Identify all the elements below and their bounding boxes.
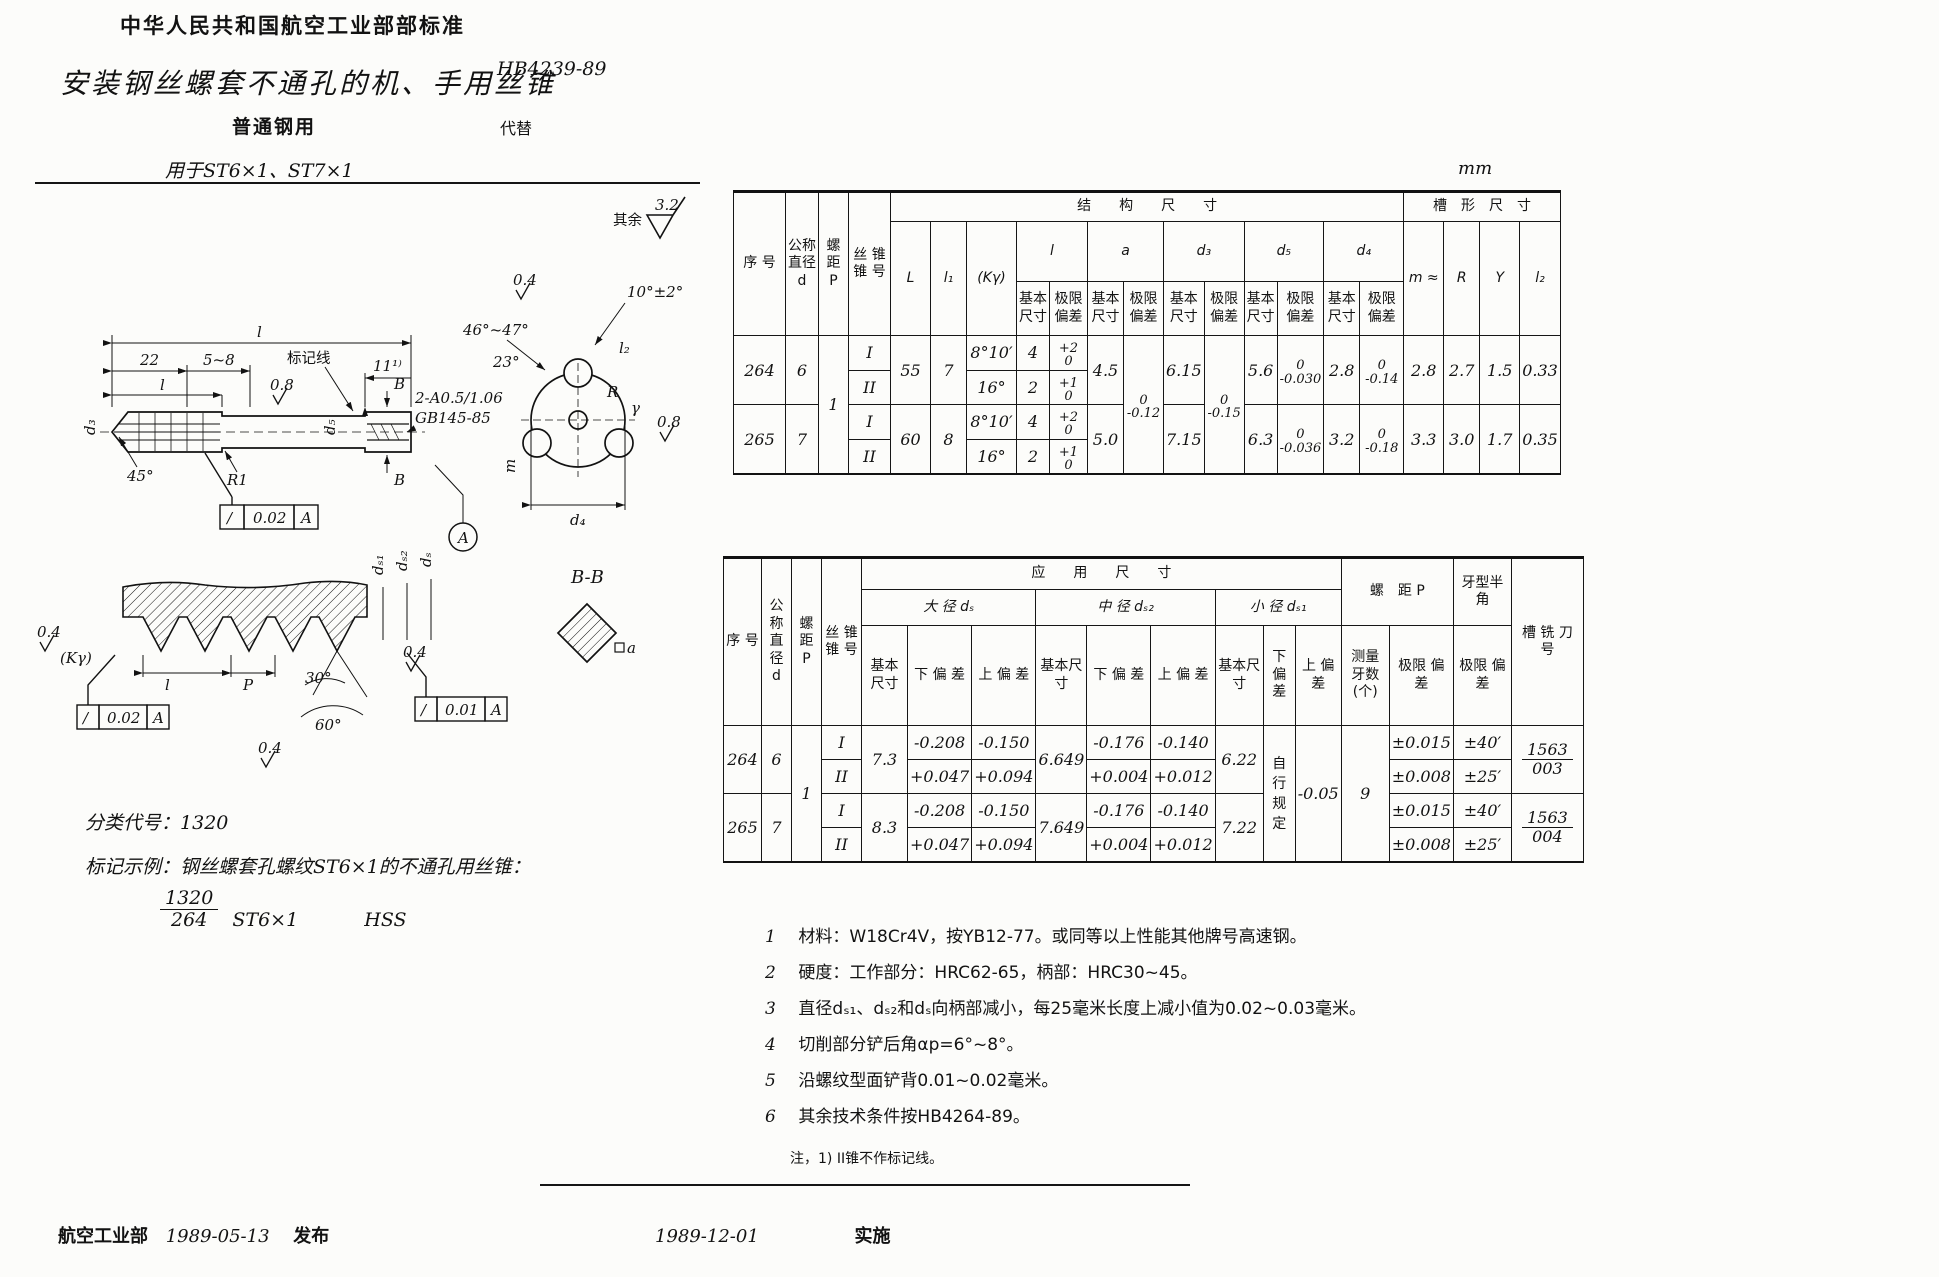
rough-04-bottom: 0.4 — [258, 739, 282, 757]
standard-number: HB4239-89 — [497, 58, 606, 80]
t1-h-a: a — [1088, 222, 1164, 282]
label-l2-endview: l₂ — [619, 339, 630, 357]
t2-h-pitch: 螺 距 P — [792, 558, 822, 726]
t2-264-cutter: 1563003 — [1511, 726, 1583, 794]
label-gamma: γ — [631, 399, 640, 417]
t2-minor-upper: -0.05 — [1295, 726, 1341, 862]
center-hole-note-2: GB145-85 — [415, 409, 491, 427]
t2-264-mid: 6.649 — [1036, 726, 1087, 794]
structure-dimensions-table: 序 号 公称直径 d 螺 距 P 丝 锥 锥 号 结 构 尺 寸 槽 形 尺 寸… — [733, 190, 1561, 475]
dim-l-profile: l — [165, 676, 170, 694]
note-6-num: 6 — [765, 1107, 793, 1127]
t1-265-l2: 0.35 — [1520, 405, 1561, 475]
note-1-num: 1 — [765, 927, 793, 947]
t2-265-d: 7 — [762, 794, 792, 862]
t1-265-ldev-II: +10 — [1050, 439, 1088, 474]
radius-R1: R1 — [226, 471, 248, 489]
t2-h-basic: 基本尺寸 — [1036, 626, 1087, 726]
marking-example-label: 标记示例：钢丝螺套孔螺纹ST6×1的不通孔用丝锥： — [85, 852, 531, 879]
t1-265-taper-II: II — [849, 439, 891, 474]
note-3: 3 直径dₛ₁、dₛ₂和dₛ向柄部减小，每25毫米长度上减小值为0.02~0.0… — [765, 994, 1366, 1019]
t1-group-structure: 结 构 尺 寸 — [891, 192, 1404, 222]
t1-group-groove: 槽 形 尺 寸 — [1404, 192, 1561, 222]
t2-h-taper: 丝 锥 锥 号 — [822, 558, 862, 726]
t2-265-maj-up-I: -0.150 — [972, 794, 1036, 828]
t1-264-d4-dev: 0-0.14 — [1360, 336, 1404, 405]
label-square-a: a — [627, 639, 636, 657]
t2-265-pdev-I: ±0.015 — [1389, 794, 1453, 828]
t1-264-K-II: 16° — [967, 370, 1017, 405]
angle-45: 45° — [126, 467, 154, 485]
unit-label: mm — [1458, 158, 1492, 179]
t1-264-m: 2.8 — [1404, 336, 1444, 405]
footer-impl-date: 1989-12-01 — [655, 1226, 759, 1247]
tol2-datum: A — [151, 709, 164, 727]
class-code-label: 分类代号： — [85, 812, 180, 834]
t1-h-dev: 极限 偏差 — [1050, 282, 1088, 336]
t1-264-ldev-II: +10 — [1050, 370, 1088, 405]
class-code-value: 1320 — [180, 812, 228, 834]
t1-265-taper-I: I — [849, 405, 891, 440]
t2-h-lower: 下 偏 差 — [1263, 626, 1295, 726]
t2-264-maj-up-I: -0.150 — [972, 726, 1036, 760]
t2-265-mid-up-I: -0.140 — [1151, 794, 1215, 828]
t1-h-basic: 基本 尺寸 — [1244, 282, 1277, 336]
t1-h-d5: d₅ — [1244, 222, 1324, 282]
t1-h-m: m ≈ — [1404, 222, 1444, 336]
t1-264-d: 6 — [786, 336, 819, 405]
thread-profile-view — [123, 579, 431, 717]
t2-group-middle: 中 径 dₛ₂ — [1036, 590, 1215, 626]
t2-264-maj-up-II: +0.094 — [972, 760, 1036, 794]
center-hole-note-1: 2-A0.5/1.06 — [414, 389, 503, 407]
t1-265-d5-dev: 0-0.036 — [1277, 405, 1324, 475]
t2-264-maj-lo-I: -0.208 — [908, 726, 972, 760]
t1-h-dev: 极限 偏差 — [1360, 282, 1404, 336]
t1-h-l: l — [1017, 222, 1088, 282]
t2-264-taper-II: II — [822, 760, 862, 794]
t2-h-upper: 上 偏 差 — [1295, 626, 1341, 726]
t2-264-mid-lo-II: +0.004 — [1087, 760, 1151, 794]
t2-pitch: 1 — [792, 726, 822, 862]
footer-rule — [540, 1184, 1190, 1186]
t1-265-ldev-I: +20 — [1050, 405, 1088, 440]
t1-h-K: (Kγ) — [967, 222, 1017, 336]
footer-org: 航空工业部 — [58, 1226, 148, 1247]
t1-h-dia: 公称直径 d — [786, 192, 819, 336]
t1-265-d: 7 — [786, 405, 819, 475]
note-5-text: 沿螺纹型面铲背0.01~0.02毫米。 — [798, 1071, 1058, 1091]
t1-h-d3: d₃ — [1164, 222, 1245, 282]
t2-264-minor: 6.22 — [1215, 726, 1263, 794]
note-4-num: 4 — [765, 1035, 793, 1055]
t1-h-R: R — [1444, 222, 1480, 336]
t1-264-l-II: 2 — [1017, 370, 1050, 405]
t2-265-seq: 265 — [724, 794, 762, 862]
t2-265-minor: 7.22 — [1215, 794, 1263, 862]
t1-264-d3: 6.15 — [1164, 336, 1205, 405]
t2-h-lower: 下 偏 差 — [908, 626, 972, 726]
t2-264-major: 7.3 — [862, 726, 908, 794]
footer-right: 1989-12-01 实施 — [655, 1222, 891, 1248]
dim-22: 22 — [139, 351, 159, 369]
t2-264-pdev-I: ±0.015 — [1389, 726, 1453, 760]
angle-23: 23° — [492, 353, 520, 371]
t1-264-taper-I: I — [849, 336, 891, 371]
t1-265-d4: 3.2 — [1324, 405, 1360, 475]
angle-30: 30° — [305, 669, 332, 687]
t1-h-L: L — [891, 222, 931, 336]
t1-h-l2: l₂ — [1520, 222, 1561, 336]
t2-264-half-I: ±40′ — [1453, 726, 1511, 760]
t1-265-Y: 1.7 — [1480, 405, 1520, 475]
t2-minor-lower: 自 行 规 定 — [1263, 726, 1295, 862]
t1-265-d4-dev: 0-0.18 — [1360, 405, 1404, 475]
t2-h-upper: 上 偏 差 — [972, 626, 1036, 726]
t1-a-dev: 0-0.12 — [1124, 336, 1164, 475]
note-6-text: 其余技术条件按HB4264-89。 — [798, 1107, 1029, 1127]
t2-265-mid-up-II: +0.012 — [1151, 828, 1215, 862]
tol3-symbol: / — [419, 701, 428, 719]
t2-h-lower: 下 偏 差 — [1087, 626, 1151, 726]
t2-h-half-dev: 极限 偏差 — [1453, 626, 1511, 726]
t2-teeth-count: 9 — [1341, 726, 1389, 862]
label-ds2: dₛ₂ — [393, 550, 411, 571]
standard-header: 中华人民共和国航空工业部部标准 — [120, 10, 465, 40]
dim-P: P — [242, 676, 254, 694]
t1-h-taper: 丝 锥 锥 号 — [849, 192, 891, 336]
page-title: 安装钢丝螺套不通孔的机、手用丝锥 — [60, 62, 556, 102]
t2-h-dev: 极限 偏差 — [1389, 626, 1453, 726]
dim-11: 11¹⁾ — [373, 357, 402, 375]
t2-264-seq: 264 — [724, 726, 762, 794]
t2-group-application: 应 用 尺 寸 — [862, 558, 1342, 590]
dim-l-total: l — [257, 323, 262, 341]
label-ds1: dₛ₁ — [369, 554, 387, 575]
tol2-value: 0.02 — [107, 709, 140, 727]
t1-264-seq: 264 — [734, 336, 786, 405]
label-d5: d₅ — [321, 419, 339, 435]
label-R-endview: R — [606, 383, 618, 401]
t2-group-pitch: 螺 距 P — [1341, 558, 1453, 626]
t1-h-Y: Y — [1480, 222, 1520, 336]
class-code-line: 分类代号：1320 — [85, 808, 228, 835]
t2-265-maj-up-II: +0.094 — [972, 828, 1036, 862]
t1-264-a: 4.5 — [1088, 336, 1124, 405]
t1-265-K-II: 16° — [967, 439, 1017, 474]
note-3-num: 3 — [765, 999, 793, 1019]
t1-264-d5: 5.6 — [1244, 336, 1277, 405]
square-symbol — [615, 643, 624, 652]
t1-265-L: 60 — [891, 405, 931, 475]
t1-h-dev: 极限 偏差 — [1204, 282, 1244, 336]
t2-265-mid-lo-II: +0.004 — [1087, 828, 1151, 862]
t1-265-l1: 8 — [931, 405, 967, 475]
t2-265-taper-II: II — [822, 828, 862, 862]
rough-08-endview: 0.8 — [657, 413, 681, 431]
technical-drawing: 其余 3.2 l 22 5~8 l 标记 — [15, 185, 720, 965]
t2-264-pdev-II: ±0.008 — [1389, 760, 1453, 794]
note-6: 6 其余技术条件按HB4264-89。 — [765, 1102, 1030, 1127]
t2-h-basic: 基本尺寸 — [862, 626, 908, 726]
t1-h-pitch: 螺 距 P — [819, 192, 849, 336]
t1-h-dev: 极限 偏差 — [1277, 282, 1324, 336]
t1-264-d4: 2.8 — [1324, 336, 1360, 405]
angle-60: 60° — [315, 716, 342, 734]
note-4: 4 切削部分铲后角αp=6°~8°。 — [765, 1030, 1024, 1055]
tol1-symbol: / — [225, 509, 234, 527]
t1-h-d4: d₄ — [1324, 222, 1404, 282]
t2-h-basic: 基本尺寸 — [1215, 626, 1263, 726]
note-1-text: 材料：W18Cr4V，按YB12-77。或同等以上性能其他牌号高速钢。 — [798, 927, 1306, 947]
tol3-datum: A — [489, 701, 502, 719]
t2-group-minor: 小 径 dₛ₁ — [1215, 590, 1341, 626]
t2-264-mid-up-II: +0.012 — [1151, 760, 1215, 794]
t1-264-L: 55 — [891, 336, 931, 405]
t2-h-upper: 上 偏 差 — [1151, 626, 1215, 726]
t2-265-pdev-II: ±0.008 — [1389, 828, 1453, 862]
rough-04-left: 0.4 — [37, 623, 61, 641]
t1-264-d5-dev: 0-0.030 — [1277, 336, 1324, 405]
application-dimensions-table: 序 号 公称直径 d 螺 距 P 丝 锥 锥 号 应 用 尺 寸 螺 距 P 牙… — [723, 556, 1584, 863]
note-3-text: 直径dₛ₁、dₛ₂和dₛ向柄部减小，每25毫米长度上减小值为0.02~0.03毫… — [798, 999, 1366, 1019]
t2-265-maj-lo-I: -0.208 — [908, 794, 972, 828]
applies-to: 用于ST6×1、ST7×1 — [165, 156, 354, 183]
angle-10: 10°±2° — [627, 283, 683, 301]
t2-group-halfangle: 牙型半角 — [1453, 558, 1511, 626]
t2-group-major: 大 径 dₛ — [862, 590, 1036, 626]
note-2: 2 硬度：工作部分：HRC62-65，柄部：HRC30~45。 — [765, 958, 1198, 983]
label-d3: d₃ — [81, 419, 99, 435]
t1-h-basic: 基本 尺寸 — [1324, 282, 1360, 336]
t2-265-mid-lo-I: -0.176 — [1087, 794, 1151, 828]
section-b-top: B — [393, 375, 405, 393]
t2-264-mid-lo-I: -0.176 — [1087, 726, 1151, 760]
note-2-num: 2 — [765, 963, 793, 983]
scanned-standard-page: 中华人民共和国航空工业部部标准 安装钢丝螺套不通孔的机、手用丝锥 HB4239-… — [0, 0, 1939, 1277]
t2-264-mid-up-I: -0.140 — [1151, 726, 1215, 760]
t2-264-taper-I: I — [822, 726, 862, 760]
title-rule — [35, 182, 700, 184]
subtitle: 普通钢用 — [232, 112, 316, 139]
t1-264-l1: 7 — [931, 336, 967, 405]
t1-265-d3: 7.15 — [1164, 405, 1205, 475]
t1-264-R: 2.7 — [1444, 336, 1480, 405]
footer-issue-label: 发布 — [293, 1226, 329, 1247]
rough-other-label: 其余 — [613, 211, 642, 229]
t1-265-K-I: 8°10′ — [967, 405, 1017, 440]
marking-line-label: 标记线 — [287, 350, 331, 367]
t1-pitch: 1 — [819, 336, 849, 475]
label-m: m — [501, 459, 519, 473]
marking-example-designation: 1320264 ST6×1 HSS — [160, 888, 407, 931]
table-footnote: 注，1) II锥不作标记线。 — [790, 1148, 943, 1168]
note-2-text: 硬度：工作部分：HRC62-65，柄部：HRC30~45。 — [798, 963, 1197, 983]
label-d4: d₄ — [570, 511, 586, 529]
label-ds: dₛ — [417, 552, 435, 567]
t1-265-l-I: 4 — [1017, 405, 1050, 440]
note-4-text: 切削部分铲后角αp=6°~8°。 — [798, 1035, 1023, 1055]
t1-265-R: 3.0 — [1444, 405, 1480, 475]
t2-265-major: 8.3 — [862, 794, 908, 862]
dim-l-sub: l — [160, 376, 165, 394]
t1-265-m: 3.3 — [1404, 405, 1444, 475]
t2-h-teeth: 测量 牙数 (个) — [1341, 626, 1389, 726]
t1-h-basic: 基本 尺寸 — [1088, 282, 1124, 336]
dim-5-8: 5~8 — [203, 351, 235, 369]
t1-h-dev: 极限 偏差 — [1124, 282, 1164, 336]
footer-impl-label: 实施 — [855, 1226, 891, 1247]
t1-h-basic: 基本 尺寸 — [1164, 282, 1205, 336]
t1-h-basic: 基本 尺寸 — [1017, 282, 1050, 336]
t1-264-K-I: 8°10′ — [967, 336, 1017, 371]
t2-265-half-I: ±40′ — [1453, 794, 1511, 828]
section-b-bottom: B — [393, 471, 405, 489]
t1-264-ldev-I: +20 — [1050, 336, 1088, 371]
t2-265-half-II: ±25′ — [1453, 828, 1511, 862]
t2-h-dia: 公称直径 d — [762, 558, 792, 726]
tol1-value: 0.02 — [253, 509, 286, 527]
marking-spec: ST6×1 — [232, 909, 298, 931]
t2-265-mid: 7.649 — [1036, 794, 1087, 862]
t2-h-cutter: 槽 铣 刀 号 — [1511, 558, 1583, 726]
tol3-value: 0.01 — [445, 701, 478, 719]
marking-fraction: 1320264 — [160, 888, 218, 931]
note-1: 1 材料：W18Cr4V，按YB12-77。或同等以上性能其他牌号高速钢。 — [765, 922, 1307, 947]
section-bb-label: B-B — [570, 567, 604, 588]
t1-h-l1: l₁ — [931, 222, 967, 336]
note-5: 5 沿螺纹型面铲背0.01~0.02毫米。 — [765, 1066, 1058, 1091]
tol2-symbol: / — [81, 709, 90, 727]
supersedes-label: 代替 — [500, 115, 532, 139]
t1-265-d5: 6.3 — [1244, 405, 1277, 475]
t2-264-maj-lo-II: +0.047 — [908, 760, 972, 794]
t1-264-l-I: 4 — [1017, 336, 1050, 371]
rough-08-shank: 0.8 — [270, 376, 294, 394]
footer-issue-date: 1989-05-13 — [166, 1226, 270, 1247]
note-5-num: 5 — [765, 1071, 793, 1091]
angle-46-47: 46°~47° — [462, 321, 529, 339]
t1-d3-dev: 0-0.15 — [1204, 336, 1244, 475]
marking-material: HSS — [364, 909, 406, 931]
t2-h-seq: 序 号 — [724, 558, 762, 726]
t1-265-seq: 265 — [734, 405, 786, 475]
t1-265-l-II: 2 — [1017, 439, 1050, 474]
t1-265-a: 5.0 — [1088, 405, 1124, 475]
rough-04-endview: 0.4 — [513, 271, 537, 289]
rough-04-right: 0.4 — [403, 643, 427, 661]
t2-265-cutter: 1563004 — [1511, 794, 1583, 862]
section-bb-shape — [558, 604, 616, 662]
tap-end-view — [521, 359, 635, 477]
tol1-datum: A — [299, 509, 312, 527]
t2-265-taper-I: I — [822, 794, 862, 828]
label-K-gamma: (Kγ) — [60, 649, 92, 667]
t2-265-maj-lo-II: +0.047 — [908, 828, 972, 862]
t1-264-taper-II: II — [849, 370, 891, 405]
t1-264-Y: 1.5 — [1480, 336, 1520, 405]
t2-264-d: 6 — [762, 726, 792, 794]
datum-a-label: A — [456, 529, 469, 547]
footer-left: 航空工业部 1989-05-13 发布 — [58, 1222, 329, 1248]
t2-264-half-II: ±25′ — [1453, 760, 1511, 794]
t1-h-seq: 序 号 — [734, 192, 786, 336]
tap-side-view — [100, 412, 425, 452]
t1-264-l2: 0.33 — [1520, 336, 1561, 405]
